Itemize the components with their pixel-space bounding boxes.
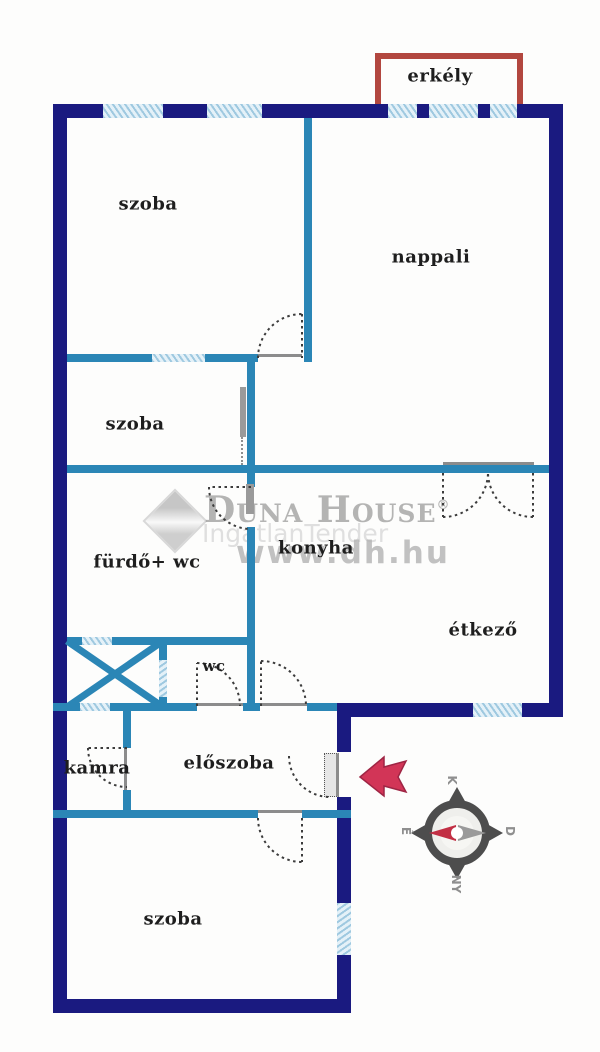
window-balcony-c (490, 104, 517, 118)
wall-left (53, 104, 67, 1013)
lintel-konyha-door (260, 703, 307, 706)
entrance-door-leaf (324, 753, 339, 797)
window-shaft-right (159, 660, 167, 697)
wall-szoba2-nappali (247, 354, 255, 473)
room-label-nappali: nappali (392, 247, 471, 268)
door-arc-double-right (488, 472, 533, 517)
room-label-szoba-felso: szoba (118, 194, 177, 215)
lintel-szoba1-door (258, 354, 302, 357)
sliding-door-bar (240, 387, 246, 437)
window-balcony-a (388, 104, 417, 118)
compass-label-south: D (503, 826, 517, 836)
room-label-etkezo: étkező (449, 620, 518, 641)
compass-needle-south (458, 825, 486, 841)
window-szoba1-left (103, 104, 163, 118)
lintel-double-door (443, 462, 534, 465)
window-shaft-top (82, 637, 112, 645)
wall-eloszoba-bottom-a (53, 810, 258, 818)
compass-needle-north (429, 825, 456, 841)
window-shaft-bottom (80, 703, 110, 711)
door-arc-szoba3 (258, 818, 302, 862)
wall-right-lower-a (337, 703, 351, 752)
wall-bottom (53, 999, 351, 1013)
door-arc-konyha (261, 661, 306, 706)
room-label-szoba-also: szoba (143, 909, 202, 930)
lintel-wc-door (197, 703, 243, 706)
wall-eloszoba-bottom-b (302, 810, 351, 818)
window-balcony-b (429, 104, 478, 118)
compass-label-east: K (445, 775, 459, 785)
compass-rose: K D NY É (399, 775, 517, 893)
wall-szoba1-nappali (304, 118, 312, 362)
wall-kamra-a (123, 711, 131, 748)
furdo-door-bar (246, 484, 254, 514)
room-label-kamra: kamra (64, 758, 131, 779)
window-szoba3 (337, 903, 351, 955)
wall-eloszoba-top-c (307, 703, 337, 711)
window-szoba2-top (152, 354, 205, 362)
dunahouse-logo-icon (142, 488, 207, 553)
compass-label-west: NY (449, 875, 463, 894)
room-label-furdo-wc: fürdő+ wc (93, 552, 200, 573)
wall-eloszoba-top-b (243, 703, 260, 711)
room-label-eloszoba: előszoba (184, 753, 275, 774)
room-label-erkely: erkély (407, 66, 472, 87)
floor-plan: Duna House® IngatlanTender www.dh.hu e (0, 0, 600, 1052)
door-arc-furdo (209, 487, 251, 529)
compass-label-north: É (399, 827, 414, 835)
entrance-arrow-icon (360, 757, 406, 796)
room-label-szoba-kozepso: szoba (105, 414, 164, 435)
door-arc-szoba1 (258, 314, 302, 358)
wall-furdo-konyha-b (247, 527, 255, 711)
registered-mark: ® (437, 498, 451, 513)
window-etkezo (473, 703, 522, 717)
door-arc-double-left (443, 472, 488, 517)
sliding-door-track (241, 437, 243, 465)
wall-right-upper (549, 104, 563, 717)
wall-middle (67, 465, 549, 473)
shaft-cross (67, 641, 163, 707)
lintel-szoba3-door (258, 810, 302, 813)
room-label-konyha: konyha (278, 538, 354, 559)
room-label-wc: wc (202, 657, 225, 675)
wall-etkezo-bottom (337, 703, 563, 717)
watermark-brand-text: Duna House (204, 489, 437, 531)
window-szoba1-right (207, 104, 262, 118)
wall-eloszoba-top-a (53, 703, 197, 711)
